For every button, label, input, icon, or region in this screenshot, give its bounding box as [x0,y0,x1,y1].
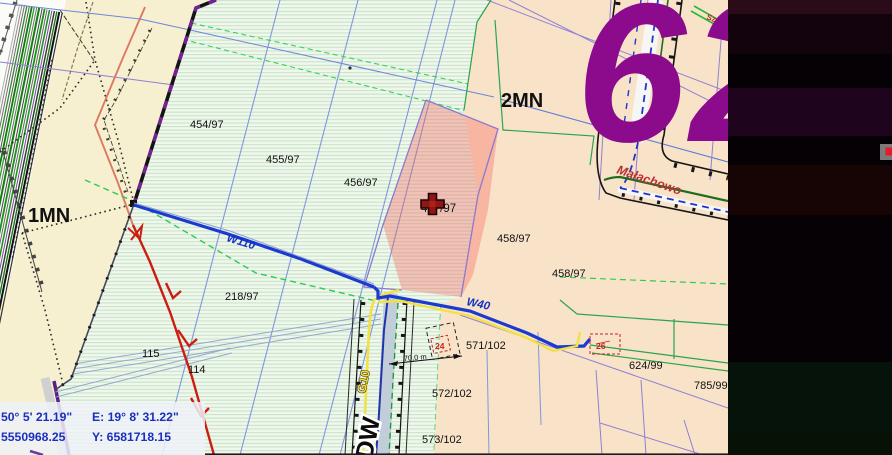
svg-text:24: 24 [435,341,445,351]
svg-text:458/97: 458/97 [552,268,586,280]
svg-text:2MN: 2MN [501,90,543,112]
svg-text:Y: 6581718.15: Y: 6581718.15 [92,430,171,444]
svg-text:458/97: 458/97 [497,233,531,245]
svg-text:218/97: 218/97 [225,291,259,303]
svg-text:5550968.25: 5550968.25 [1,430,66,444]
svg-text:1MN: 1MN [28,205,70,227]
svg-text:455/97: 455/97 [266,154,300,166]
svg-text:573/102: 573/102 [422,434,462,446]
svg-text:785/99: 785/99 [694,380,728,392]
svg-text:571/102: 571/102 [466,340,506,352]
svg-text:624/99: 624/99 [629,360,663,372]
svg-text:454/97: 454/97 [190,119,224,131]
svg-text:50° 5' 21.19": 50° 5' 21.19" [1,410,72,424]
svg-text:572/102: 572/102 [432,388,472,400]
svg-text:115: 115 [142,348,160,360]
svg-text:114: 114 [188,364,206,376]
svg-text:E: 19° 8' 31.22": E: 19° 8' 31.22" [92,410,179,424]
svg-text:456/97: 456/97 [344,177,378,189]
